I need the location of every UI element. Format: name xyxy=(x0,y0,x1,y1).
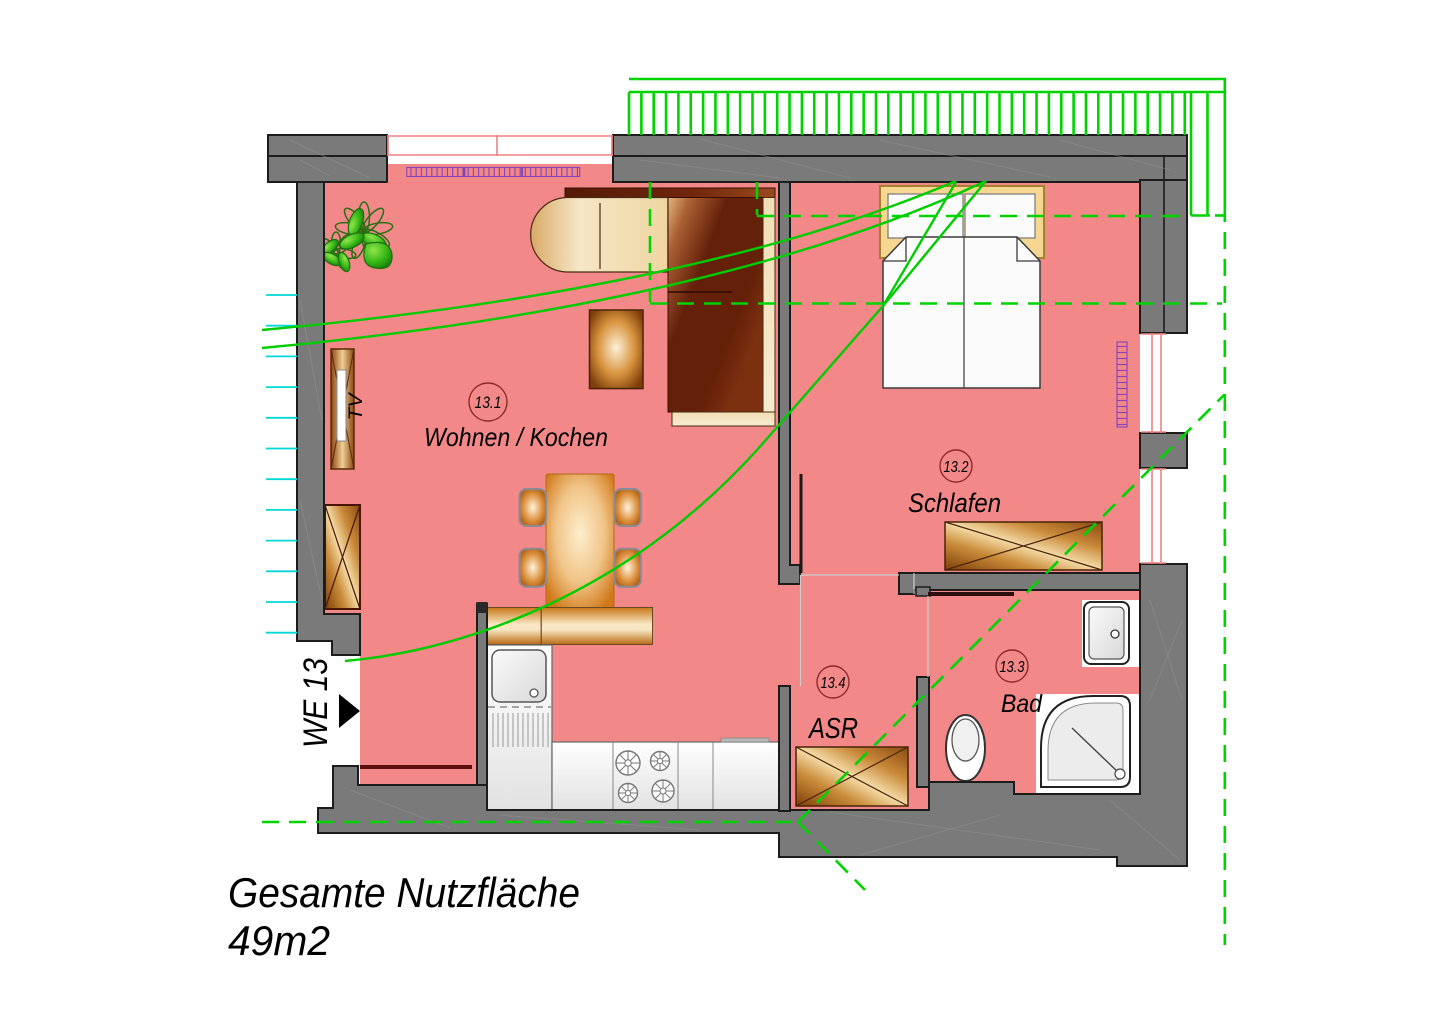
svg-text:ASR: ASR xyxy=(807,713,858,745)
svg-text:13.1: 13.1 xyxy=(475,393,502,412)
svg-text:TV: TV xyxy=(346,391,367,421)
svg-text:Schlafen: Schlafen xyxy=(908,488,1001,518)
svg-text:13.4: 13.4 xyxy=(821,675,846,692)
svg-text:Bad: Bad xyxy=(1001,690,1043,718)
svg-text:13.2: 13.2 xyxy=(944,459,969,476)
svg-text:13.3: 13.3 xyxy=(1000,659,1025,676)
svg-text:WE 13: WE 13 xyxy=(297,658,335,748)
svg-text:Wohnen / Kochen: Wohnen / Kochen xyxy=(424,422,608,452)
svg-text:49m2: 49m2 xyxy=(228,917,330,964)
svg-text:Gesamte Nutzfläche: Gesamte Nutzfläche xyxy=(228,869,580,916)
